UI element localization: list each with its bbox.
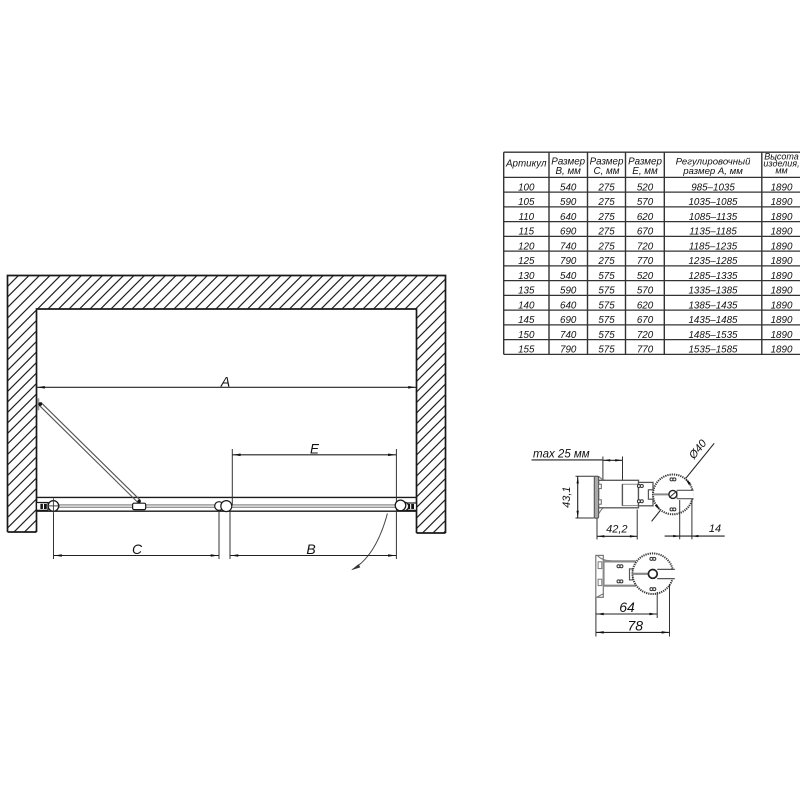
- svg-text:690: 690: [560, 315, 577, 326]
- svg-text:1235–1285: 1235–1285: [688, 256, 738, 267]
- svg-text:1535–1585: 1535–1585: [688, 345, 738, 356]
- svg-text:1890: 1890: [771, 256, 793, 267]
- svg-text:1485–1535: 1485–1535: [688, 330, 738, 341]
- svg-text:Артикул: Артикул: [505, 158, 547, 169]
- svg-text:130: 130: [518, 271, 535, 282]
- svg-text:14: 14: [709, 523, 721, 535]
- svg-text:42,2: 42,2: [606, 523, 627, 535]
- svg-text:1085–1135: 1085–1135: [689, 212, 738, 223]
- svg-text:125: 125: [518, 256, 535, 267]
- svg-text:135: 135: [518, 286, 535, 297]
- svg-text:570: 570: [637, 197, 654, 208]
- svg-text:105: 105: [518, 197, 535, 208]
- svg-text:275: 275: [597, 182, 615, 193]
- svg-text:1890: 1890: [771, 300, 793, 311]
- svg-text:575: 575: [598, 300, 615, 311]
- svg-text:E, мм: E, мм: [632, 166, 658, 177]
- svg-text:520: 520: [637, 271, 654, 282]
- svg-text:620: 620: [637, 212, 654, 223]
- svg-text:275: 275: [597, 227, 615, 238]
- svg-text:575: 575: [598, 330, 615, 341]
- svg-text:1035–1085: 1035–1085: [688, 197, 738, 208]
- svg-text:размер А, мм: размер А, мм: [682, 166, 743, 177]
- svg-text:790: 790: [560, 256, 577, 267]
- svg-text:575: 575: [598, 286, 615, 297]
- svg-text:575: 575: [598, 315, 615, 326]
- svg-text:1890: 1890: [771, 345, 793, 356]
- svg-text:275: 275: [597, 197, 615, 208]
- svg-text:150: 150: [518, 330, 535, 341]
- svg-text:max 25 мм: max 25 мм: [533, 448, 590, 460]
- svg-text:275: 275: [597, 212, 615, 223]
- svg-text:120: 120: [518, 241, 535, 252]
- svg-text:155: 155: [518, 345, 535, 356]
- svg-text:B: B: [306, 541, 315, 557]
- svg-text:790: 790: [560, 345, 577, 356]
- svg-text:1385–1435: 1385–1435: [688, 300, 738, 311]
- svg-text:640: 640: [560, 212, 577, 223]
- svg-text:540: 540: [560, 182, 577, 193]
- svg-text:A: A: [220, 373, 230, 389]
- svg-text:985–1035: 985–1035: [691, 182, 735, 193]
- svg-text:1890: 1890: [771, 330, 793, 341]
- svg-text:1435–1485: 1435–1485: [688, 315, 738, 326]
- svg-text:1890: 1890: [771, 182, 793, 193]
- svg-text:1890: 1890: [771, 197, 793, 208]
- svg-text:C: C: [132, 541, 143, 557]
- svg-text:575: 575: [598, 271, 615, 282]
- svg-text:140: 140: [518, 300, 535, 311]
- svg-text:1890: 1890: [771, 286, 793, 297]
- svg-text:100: 100: [518, 182, 535, 193]
- svg-text:1335–1385: 1335–1385: [688, 286, 738, 297]
- svg-text:1135–1185: 1135–1185: [689, 227, 737, 238]
- svg-text:110: 110: [518, 212, 534, 223]
- svg-text:мм: мм: [775, 165, 787, 175]
- svg-text:720: 720: [637, 241, 654, 252]
- svg-text:670: 670: [637, 315, 654, 326]
- svg-text:1285–1335: 1285–1335: [688, 271, 738, 282]
- svg-text:1890: 1890: [771, 212, 793, 223]
- svg-text:275: 275: [597, 256, 615, 267]
- svg-text:670: 670: [637, 227, 654, 238]
- svg-text:1890: 1890: [771, 241, 793, 252]
- svg-text:570: 570: [637, 286, 654, 297]
- svg-text:640: 640: [560, 300, 577, 311]
- svg-text:740: 740: [560, 241, 577, 252]
- svg-text:145: 145: [518, 315, 535, 326]
- svg-text:590: 590: [560, 197, 577, 208]
- svg-text:E: E: [310, 441, 320, 456]
- svg-text:275: 275: [597, 241, 615, 252]
- svg-text:520: 520: [637, 182, 654, 193]
- svg-text:1890: 1890: [771, 227, 793, 238]
- svg-text:1890: 1890: [771, 271, 793, 282]
- svg-text:770: 770: [637, 345, 654, 356]
- svg-text:770: 770: [637, 256, 654, 267]
- svg-text:620: 620: [637, 300, 654, 311]
- svg-text:64: 64: [619, 599, 635, 615]
- svg-text:1185–1235: 1185–1235: [689, 241, 738, 252]
- svg-text:590: 590: [560, 286, 577, 297]
- svg-text:575: 575: [598, 345, 615, 356]
- svg-text:C, мм: C, мм: [594, 166, 620, 177]
- svg-text:1890: 1890: [771, 315, 793, 326]
- svg-text:740: 740: [560, 330, 577, 341]
- svg-text:78: 78: [628, 618, 644, 634]
- svg-text:43,1: 43,1: [561, 486, 573, 507]
- svg-text:720: 720: [637, 330, 654, 341]
- svg-text:115: 115: [518, 227, 534, 238]
- svg-text:690: 690: [560, 227, 577, 238]
- svg-text:B, мм: B, мм: [555, 166, 581, 177]
- svg-text:540: 540: [560, 271, 577, 282]
